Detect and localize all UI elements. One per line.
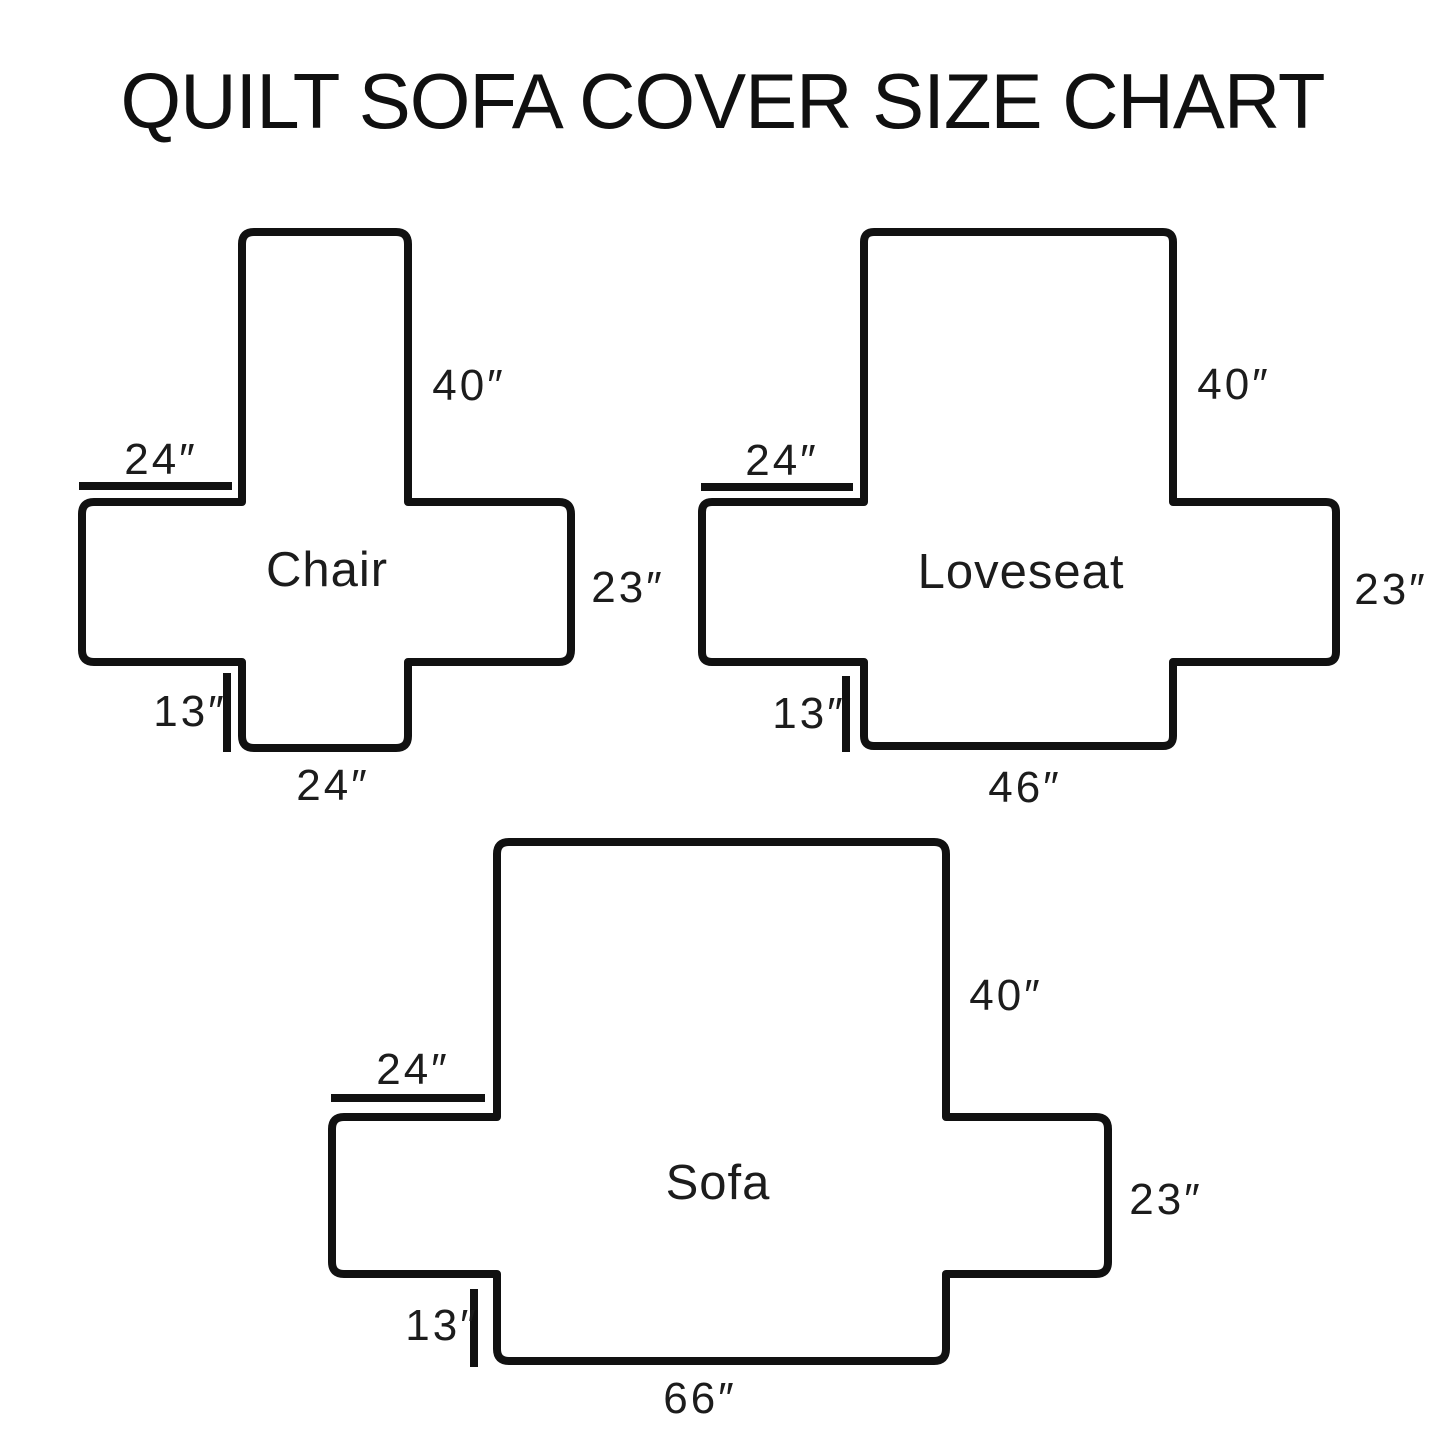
loveseat-seat-width-label: 46″ <box>988 763 1062 813</box>
size-chart-page: QUILT SOFA COVER SIZE CHART 40″ 24″ 23″ … <box>0 0 1445 1435</box>
sofa-back-height-label: 40″ <box>969 971 1043 1021</box>
sofa-front-drop-label: 13″ <box>405 1301 479 1351</box>
chair-arm-top-width-label: 24″ <box>124 435 198 485</box>
loveseat-arm-top-width-label: 24″ <box>745 436 819 486</box>
sofa-seat-width-label: 66″ <box>663 1374 737 1424</box>
chair-front-drop-label: 13″ <box>153 687 227 737</box>
loveseat-back-height-label: 40″ <box>1197 360 1271 410</box>
loveseat-name-label: Loveseat <box>918 544 1125 600</box>
loveseat-side-depth-label: 23″ <box>1354 565 1428 615</box>
chair-side-depth-label: 23″ <box>591 563 665 613</box>
sofa-arm-top-width-label: 24″ <box>376 1045 450 1095</box>
chair-seat-width-label: 24″ <box>296 761 370 811</box>
sofa-name-label: Sofa <box>666 1155 771 1211</box>
chair-name-label: Chair <box>266 542 388 598</box>
loveseat-front-drop-label: 13″ <box>772 689 846 739</box>
sofa-side-depth-label: 23″ <box>1129 1175 1203 1225</box>
chair-back-height-label: 40″ <box>432 361 506 411</box>
